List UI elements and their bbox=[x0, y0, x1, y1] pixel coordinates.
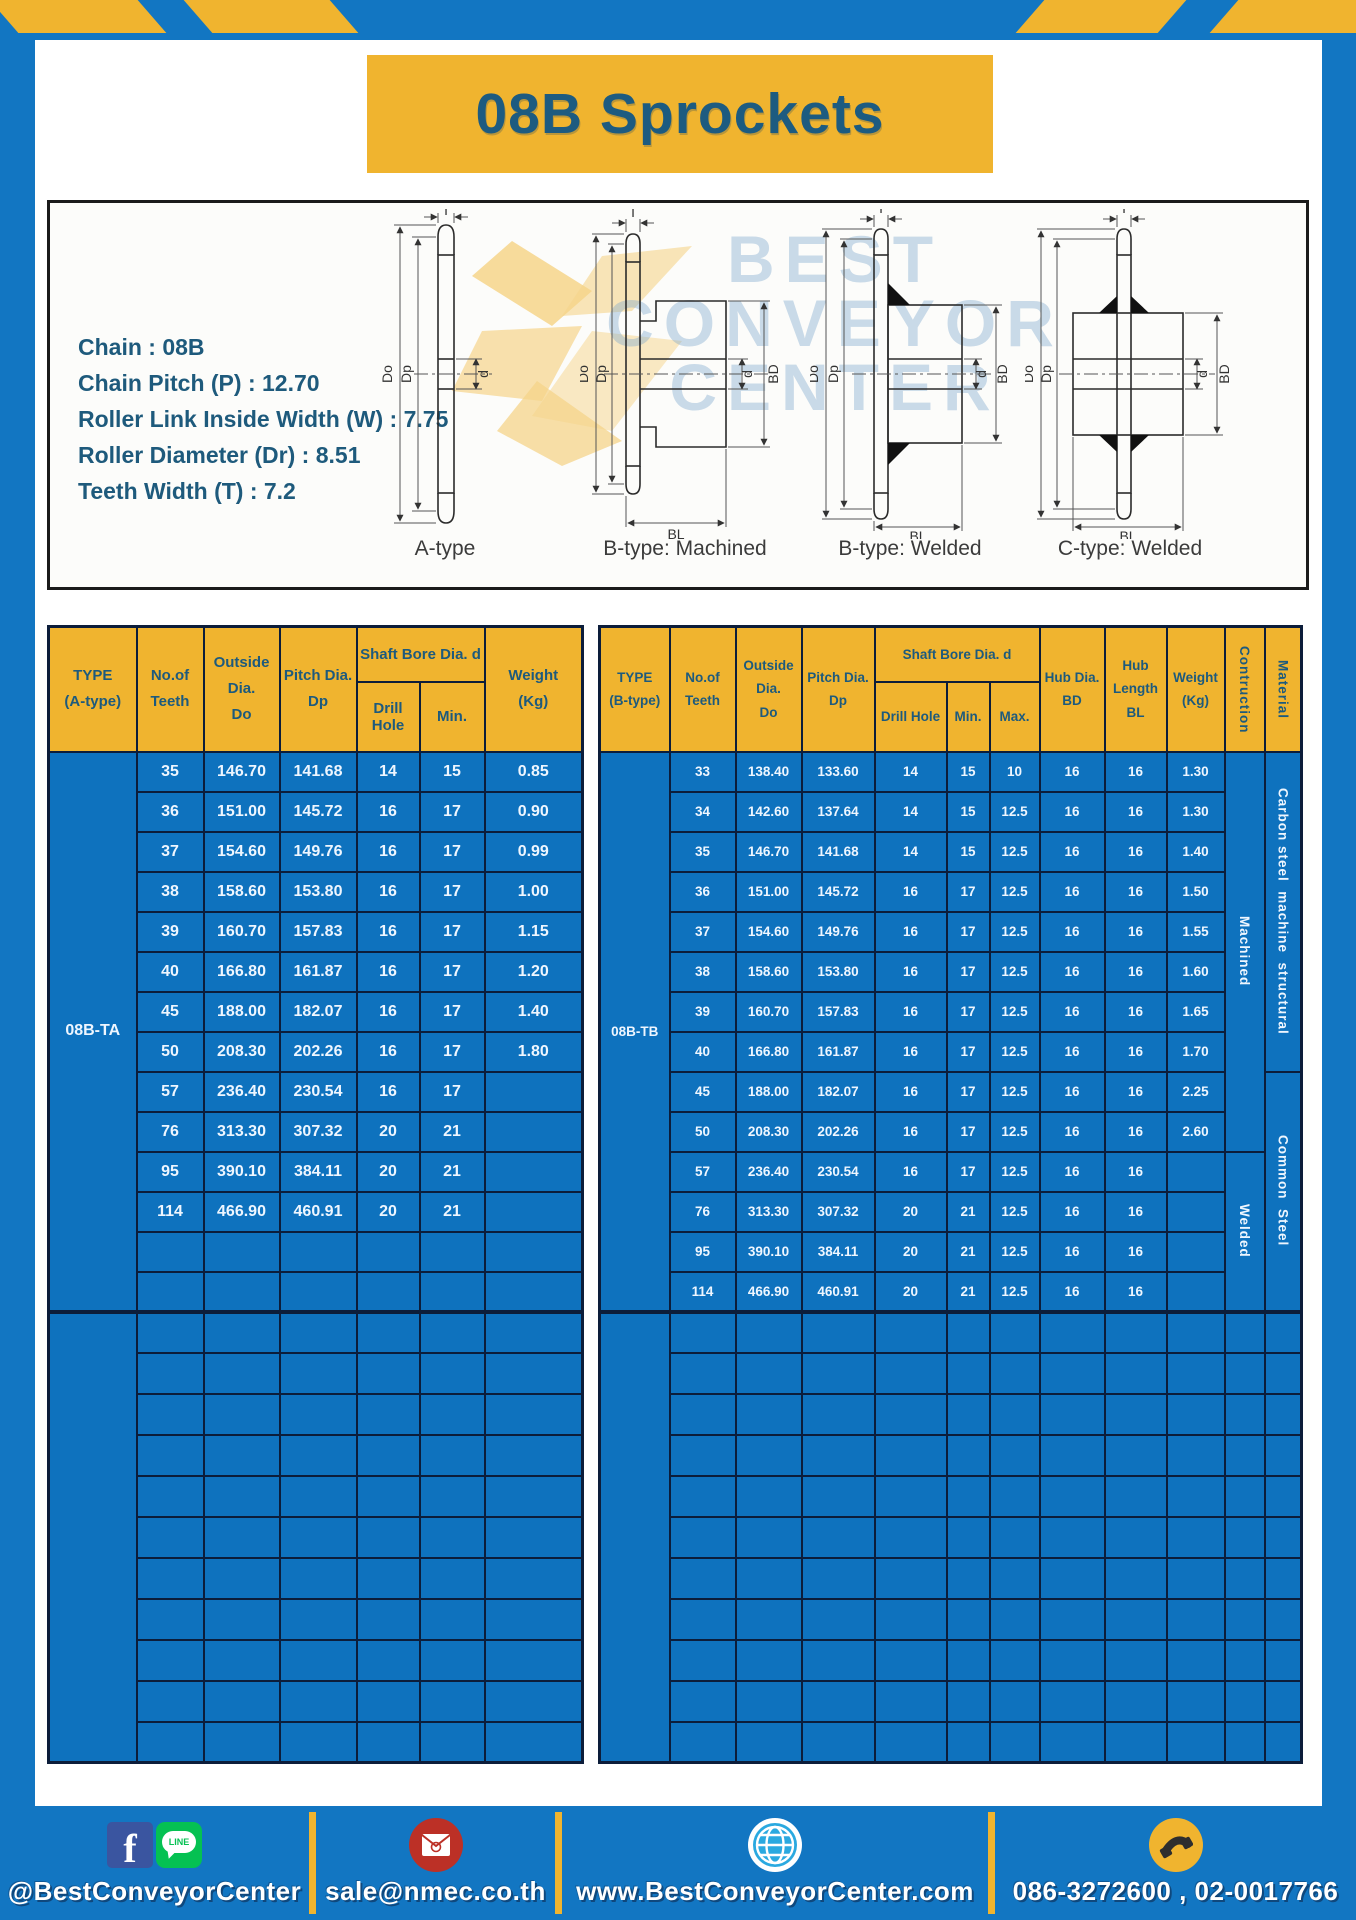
cell-outside: 146.70 bbox=[736, 832, 802, 872]
cell-pitch: 141.68 bbox=[280, 752, 357, 792]
empty-cell bbox=[137, 1312, 204, 1353]
cell-outside: 146.70 bbox=[204, 752, 280, 792]
catalog-page: 08B Sprockets BEST CONVEYOR CENTER Chain… bbox=[0, 0, 1356, 1920]
empty-cell bbox=[280, 1394, 357, 1435]
cell-outside: 466.90 bbox=[204, 1192, 280, 1232]
cell-min: 17 bbox=[420, 1032, 485, 1072]
empty-cell bbox=[420, 1558, 485, 1599]
cell-max: 12.5 bbox=[990, 792, 1040, 832]
cell-pitch: 460.91 bbox=[802, 1272, 875, 1312]
dim-label: Dp bbox=[398, 365, 414, 383]
cell-hub_dia: 16 bbox=[1040, 1152, 1105, 1192]
empty-cell bbox=[1167, 1312, 1225, 1353]
cell-pitch: 460.91 bbox=[280, 1192, 357, 1232]
dim-label: d bbox=[739, 370, 755, 378]
empty-cell bbox=[204, 1599, 280, 1640]
empty-cell bbox=[485, 1558, 583, 1599]
empty-cell bbox=[357, 1558, 420, 1599]
footer-phone-section: 086-3272600 , 02-0017766 bbox=[995, 1806, 1356, 1920]
empty-cell bbox=[204, 1722, 280, 1763]
empty-cell bbox=[875, 1640, 947, 1681]
empty-cell bbox=[137, 1599, 204, 1640]
cell-hub_dia: 16 bbox=[1040, 872, 1105, 912]
type-cell: 08B-TA bbox=[49, 752, 137, 1312]
cell-drill: 20 bbox=[357, 1192, 420, 1232]
empty-cell bbox=[736, 1435, 802, 1476]
empty-cell bbox=[485, 1435, 583, 1476]
cell-drill: 14 bbox=[875, 832, 947, 872]
empty-cell bbox=[947, 1640, 990, 1681]
cell-weight: 1.55 bbox=[1167, 912, 1225, 952]
empty-cell bbox=[1265, 1722, 1302, 1763]
empty-cell bbox=[204, 1558, 280, 1599]
empty-cell bbox=[990, 1722, 1040, 1763]
empty-cell bbox=[947, 1599, 990, 1640]
email-icon[interactable] bbox=[409, 1818, 463, 1872]
empty-cell bbox=[670, 1476, 736, 1517]
cell-min: 15 bbox=[420, 752, 485, 792]
cell-weight: 1.80 bbox=[485, 1032, 583, 1072]
cell-min: 21 bbox=[420, 1152, 485, 1192]
empty-cell bbox=[1225, 1353, 1265, 1394]
empty-cell bbox=[137, 1394, 204, 1435]
empty-cell bbox=[802, 1517, 875, 1558]
empty-cell bbox=[1040, 1312, 1105, 1353]
cell-pitch: 157.83 bbox=[280, 912, 357, 952]
cell-teeth: 34 bbox=[670, 792, 736, 832]
empty-cell bbox=[736, 1312, 802, 1353]
empty-cell bbox=[736, 1353, 802, 1394]
cell-teeth: 39 bbox=[670, 992, 736, 1032]
footer-divider bbox=[555, 1812, 562, 1914]
type-cell-empty bbox=[49, 1312, 137, 1763]
cell-hub_dia: 16 bbox=[1040, 1192, 1105, 1232]
footer-phone[interactable]: 086-3272600 , 02-0017766 bbox=[1013, 1876, 1339, 1907]
empty-cell bbox=[204, 1353, 280, 1394]
empty-cell bbox=[990, 1312, 1040, 1353]
header-teeth: No.ofTeeth bbox=[137, 627, 204, 752]
empty-cell bbox=[990, 1681, 1040, 1722]
empty-cell bbox=[1265, 1353, 1302, 1394]
cell-max: 12.5 bbox=[990, 872, 1040, 912]
cell-weight: 0.90 bbox=[485, 792, 583, 832]
cell-hub_dia: 16 bbox=[1040, 992, 1105, 1032]
cell-hub_len: 16 bbox=[1105, 1232, 1167, 1272]
drawing-label: C-type: Welded bbox=[1020, 537, 1240, 561]
empty-cell bbox=[670, 1312, 736, 1353]
cell-teeth: 95 bbox=[137, 1152, 204, 1192]
empty-cell bbox=[802, 1558, 875, 1599]
cell-pitch: 145.72 bbox=[280, 792, 357, 832]
cell-teeth: 37 bbox=[137, 832, 204, 872]
cell-pitch: 307.32 bbox=[280, 1112, 357, 1152]
type-cell-empty bbox=[600, 1312, 670, 1763]
cell-max: 12.5 bbox=[990, 1072, 1040, 1112]
empty-cell bbox=[485, 1640, 583, 1681]
cell-drill: 16 bbox=[357, 952, 420, 992]
cell-teeth: 38 bbox=[670, 952, 736, 992]
cell-pitch: 384.11 bbox=[802, 1232, 875, 1272]
empty-cell bbox=[947, 1558, 990, 1599]
empty-cell bbox=[1265, 1681, 1302, 1722]
cell-drill: 20 bbox=[875, 1232, 947, 1272]
cell-hub_len: 16 bbox=[1105, 1112, 1167, 1152]
empty-cell bbox=[875, 1353, 947, 1394]
cell-outside bbox=[204, 1232, 280, 1272]
empty-cell bbox=[420, 1353, 485, 1394]
cell-outside: 466.90 bbox=[736, 1272, 802, 1312]
empty-cell bbox=[1105, 1394, 1167, 1435]
empty-cell bbox=[485, 1312, 583, 1353]
cell-teeth: 50 bbox=[670, 1112, 736, 1152]
cell-teeth: 40 bbox=[137, 952, 204, 992]
cell-drill bbox=[357, 1272, 420, 1312]
empty-cell bbox=[204, 1517, 280, 1558]
cell-min: 21 bbox=[420, 1192, 485, 1232]
cell-min: 21 bbox=[947, 1232, 990, 1272]
cell-hub_len: 16 bbox=[1105, 1152, 1167, 1192]
empty-cell bbox=[137, 1722, 204, 1763]
cell-drill: 16 bbox=[875, 912, 947, 952]
empty-cell bbox=[736, 1517, 802, 1558]
empty-cell bbox=[485, 1681, 583, 1722]
empty-cell bbox=[736, 1476, 802, 1517]
cell-outside: 390.10 bbox=[736, 1232, 802, 1272]
empty-cell bbox=[485, 1476, 583, 1517]
empty-cell bbox=[137, 1353, 204, 1394]
cell-min: 17 bbox=[947, 912, 990, 952]
empty-cell bbox=[1225, 1558, 1265, 1599]
cell-weight bbox=[485, 1272, 583, 1312]
dim-label: Dp bbox=[593, 365, 609, 383]
empty-cell bbox=[875, 1517, 947, 1558]
empty-cell bbox=[875, 1394, 947, 1435]
hazard-stripe-icon bbox=[184, 0, 359, 33]
cell-pitch: 384.11 bbox=[280, 1152, 357, 1192]
empty-cell bbox=[1167, 1476, 1225, 1517]
empty-cell bbox=[947, 1312, 990, 1353]
sprocket-table-a: TYPE(A-type) No.ofTeeth OutsideDia.Do Pi… bbox=[47, 625, 584, 1764]
empty-cell bbox=[1167, 1681, 1225, 1722]
cell-teeth: 95 bbox=[670, 1232, 736, 1272]
empty-cell bbox=[1167, 1599, 1225, 1640]
empty-cell bbox=[1225, 1394, 1265, 1435]
cell-hub_len: 16 bbox=[1105, 1072, 1167, 1112]
footer-divider bbox=[988, 1812, 995, 1914]
empty-cell bbox=[420, 1517, 485, 1558]
cell-weight bbox=[1167, 1152, 1225, 1192]
empty-cell bbox=[1105, 1476, 1167, 1517]
empty-cell bbox=[280, 1681, 357, 1722]
cell-teeth: 35 bbox=[670, 832, 736, 872]
header-hub-length: HubLengthBL bbox=[1105, 627, 1167, 752]
cell-drill: 20 bbox=[875, 1272, 947, 1312]
cell-pitch: 153.80 bbox=[802, 952, 875, 992]
cell-min: 21 bbox=[947, 1272, 990, 1312]
drawing-b-type-welded: T Do Dp d BD BL bbox=[810, 209, 1010, 544]
cell-pitch: 182.07 bbox=[280, 992, 357, 1032]
drawing-b-type-machined: T Do Dp d BD BL bbox=[580, 209, 790, 544]
cell-max: 12.5 bbox=[990, 992, 1040, 1032]
cell-outside: 160.70 bbox=[204, 912, 280, 952]
cell-pitch: 141.68 bbox=[802, 832, 875, 872]
empty-cell bbox=[420, 1312, 485, 1353]
cell-max: 12.5 bbox=[990, 1152, 1040, 1192]
header-weight: Weight(Kg) bbox=[485, 627, 583, 752]
empty-cell bbox=[670, 1722, 736, 1763]
cell-min: 17 bbox=[947, 1072, 990, 1112]
cell-teeth: 35 bbox=[137, 752, 204, 792]
cell-weight: 1.40 bbox=[485, 992, 583, 1032]
cell-weight: 1.70 bbox=[1167, 1032, 1225, 1072]
cell-pitch: 153.80 bbox=[280, 872, 357, 912]
empty-cell bbox=[1265, 1599, 1302, 1640]
empty-cell bbox=[485, 1722, 583, 1763]
cell-max: 12.5 bbox=[990, 952, 1040, 992]
cell-drill: 14 bbox=[357, 752, 420, 792]
cell-hub_len: 16 bbox=[1105, 952, 1167, 992]
empty-cell bbox=[802, 1435, 875, 1476]
cell-drill: 16 bbox=[357, 992, 420, 1032]
cell-hub_len: 16 bbox=[1105, 1272, 1167, 1312]
cell-max: 12.5 bbox=[990, 1272, 1040, 1312]
empty-cell bbox=[485, 1599, 583, 1640]
empty-cell bbox=[485, 1517, 583, 1558]
empty-cell bbox=[1225, 1599, 1265, 1640]
header-max: Max. bbox=[990, 682, 1040, 752]
empty-cell bbox=[1040, 1681, 1105, 1722]
header-outside-dia: OutsideDia.Do bbox=[736, 627, 802, 752]
footer-email[interactable]: sale@nmec.co.th bbox=[325, 1876, 546, 1907]
cell-hub_dia: 16 bbox=[1040, 792, 1105, 832]
empty-cell bbox=[802, 1394, 875, 1435]
header-pitch-dia: Pitch Dia.Dp bbox=[280, 627, 357, 752]
hazard-stripe-icon bbox=[1210, 0, 1356, 33]
empty-cell bbox=[1040, 1435, 1105, 1476]
empty-cell bbox=[947, 1517, 990, 1558]
cell-drill: 16 bbox=[357, 912, 420, 952]
cell-teeth: 33 bbox=[670, 752, 736, 792]
drawing-c-type-welded: T Do Dp d BD BL bbox=[1025, 209, 1235, 544]
empty-cell bbox=[990, 1353, 1040, 1394]
hazard-stripe-icon bbox=[1016, 0, 1187, 33]
empty-cell bbox=[990, 1394, 1040, 1435]
cell-max: 12.5 bbox=[990, 1032, 1040, 1072]
facebook-icon[interactable]: f bbox=[107, 1822, 153, 1868]
empty-cell bbox=[670, 1394, 736, 1435]
dim-label: Dp bbox=[825, 365, 841, 383]
empty-cell bbox=[875, 1681, 947, 1722]
dim-label: T bbox=[877, 209, 886, 216]
empty-cell bbox=[990, 1435, 1040, 1476]
empty-cell bbox=[1105, 1558, 1167, 1599]
footer-email-section: sale@nmec.co.th bbox=[316, 1806, 555, 1920]
cell-outside: 390.10 bbox=[204, 1152, 280, 1192]
cell-drill: 16 bbox=[875, 1152, 947, 1192]
material-cell: Common Steel bbox=[1265, 1072, 1302, 1312]
empty-cell bbox=[947, 1394, 990, 1435]
header-min: Min. bbox=[420, 682, 485, 752]
cell-drill bbox=[357, 1232, 420, 1272]
cell-min: 17 bbox=[947, 1032, 990, 1072]
cell-min bbox=[420, 1232, 485, 1272]
empty-cell bbox=[802, 1312, 875, 1353]
empty-cell bbox=[670, 1640, 736, 1681]
cell-teeth: 36 bbox=[137, 792, 204, 832]
globe-icon[interactable] bbox=[748, 1818, 802, 1872]
empty-cell bbox=[357, 1435, 420, 1476]
empty-cell bbox=[137, 1640, 204, 1681]
cell-weight: 1.30 bbox=[1167, 792, 1225, 832]
empty-cell bbox=[990, 1599, 1040, 1640]
empty-cell bbox=[1225, 1476, 1265, 1517]
empty-cell bbox=[1167, 1517, 1225, 1558]
cell-weight bbox=[1167, 1272, 1225, 1312]
empty-cell bbox=[420, 1640, 485, 1681]
empty-cell bbox=[1105, 1517, 1167, 1558]
cell-outside bbox=[204, 1272, 280, 1312]
cell-teeth: 38 bbox=[137, 872, 204, 912]
dim-label: T bbox=[1120, 209, 1129, 216]
dim-label: T bbox=[629, 209, 638, 220]
cell-outside: 151.00 bbox=[736, 872, 802, 912]
dim-label: d bbox=[973, 370, 989, 378]
cell-outside: 154.60 bbox=[204, 832, 280, 872]
dim-label: d bbox=[1194, 370, 1210, 378]
cell-hub_dia: 16 bbox=[1040, 912, 1105, 952]
empty-cell bbox=[670, 1599, 736, 1640]
cell-min: 17 bbox=[420, 792, 485, 832]
cell-pitch: 202.26 bbox=[280, 1032, 357, 1072]
empty-cell bbox=[280, 1353, 357, 1394]
dim-label: BD bbox=[994, 364, 1010, 383]
empty-cell bbox=[1040, 1394, 1105, 1435]
dim-label: Do bbox=[810, 365, 821, 383]
cell-pitch: 137.64 bbox=[802, 792, 875, 832]
cell-teeth: 57 bbox=[137, 1072, 204, 1112]
cell-hub_dia: 16 bbox=[1040, 1112, 1105, 1152]
footer-divider bbox=[309, 1812, 316, 1914]
cell-pitch: 230.54 bbox=[280, 1072, 357, 1112]
cell-weight: 1.30 bbox=[1167, 752, 1225, 792]
footer-social-handle[interactable]: @BestConveyorCenter bbox=[8, 1876, 301, 1907]
cell-min: 17 bbox=[947, 952, 990, 992]
empty-cell bbox=[485, 1394, 583, 1435]
header-teeth: No.ofTeeth bbox=[670, 627, 736, 752]
dim-label: BD bbox=[765, 364, 781, 383]
empty-cell bbox=[802, 1353, 875, 1394]
empty-cell bbox=[280, 1312, 357, 1353]
cell-min: 15 bbox=[947, 832, 990, 872]
construction-cell: Machined bbox=[1225, 752, 1265, 1152]
cell-pitch: 145.72 bbox=[802, 872, 875, 912]
empty-cell bbox=[1225, 1722, 1265, 1763]
empty-cell bbox=[204, 1640, 280, 1681]
cell-pitch: 307.32 bbox=[802, 1192, 875, 1232]
cell-min: 17 bbox=[947, 872, 990, 912]
cell-drill: 16 bbox=[357, 792, 420, 832]
cell-pitch: 149.76 bbox=[280, 832, 357, 872]
cell-teeth: 114 bbox=[670, 1272, 736, 1312]
cell-drill: 14 bbox=[875, 752, 947, 792]
empty-cell bbox=[947, 1476, 990, 1517]
empty-cell bbox=[357, 1517, 420, 1558]
cell-outside: 188.00 bbox=[736, 1072, 802, 1112]
cell-outside: 142.60 bbox=[736, 792, 802, 832]
cell-min: 21 bbox=[420, 1112, 485, 1152]
empty-cell bbox=[1167, 1394, 1225, 1435]
empty-cell bbox=[357, 1476, 420, 1517]
cell-hub_dia: 16 bbox=[1040, 1272, 1105, 1312]
empty-cell bbox=[1040, 1722, 1105, 1763]
cell-weight: 1.40 bbox=[1167, 832, 1225, 872]
empty-cell bbox=[1167, 1353, 1225, 1394]
header-construction: Contruction bbox=[1225, 627, 1265, 752]
drawing-label: B-type: Welded bbox=[800, 537, 1020, 561]
drawing-a-type: T Do Dp d bbox=[380, 209, 510, 544]
cell-weight: 0.85 bbox=[485, 752, 583, 792]
cell-weight bbox=[485, 1112, 583, 1152]
cell-weight: 1.00 bbox=[485, 872, 583, 912]
empty-cell bbox=[990, 1517, 1040, 1558]
cell-drill: 16 bbox=[875, 1072, 947, 1112]
empty-cell bbox=[1225, 1517, 1265, 1558]
empty-cell bbox=[1265, 1640, 1302, 1681]
cell-hub_dia: 16 bbox=[1040, 952, 1105, 992]
dim-label: d bbox=[475, 370, 491, 378]
empty-cell bbox=[875, 1599, 947, 1640]
cell-outside: 166.80 bbox=[204, 952, 280, 992]
cell-teeth bbox=[137, 1272, 204, 1312]
empty-cell bbox=[1167, 1558, 1225, 1599]
empty-cell bbox=[137, 1517, 204, 1558]
cell-weight: 1.20 bbox=[485, 952, 583, 992]
cell-drill: 16 bbox=[875, 872, 947, 912]
cell-weight bbox=[485, 1072, 583, 1112]
cell-pitch bbox=[280, 1232, 357, 1272]
empty-cell bbox=[357, 1312, 420, 1353]
cell-outside: 208.30 bbox=[204, 1032, 280, 1072]
cell-weight: 1.15 bbox=[485, 912, 583, 952]
cell-outside: 208.30 bbox=[736, 1112, 802, 1152]
empty-cell bbox=[204, 1394, 280, 1435]
empty-cell bbox=[1265, 1435, 1302, 1476]
dim-label: Dp bbox=[1038, 365, 1054, 383]
header-material: Material bbox=[1265, 627, 1302, 752]
empty-cell bbox=[1225, 1312, 1265, 1353]
empty-cell bbox=[1265, 1476, 1302, 1517]
cell-outside: 236.40 bbox=[736, 1152, 802, 1192]
sprocket-table-b: TYPE(B-type) No.ofTeeth OutsideDia.Do Pi… bbox=[598, 625, 1303, 1764]
cell-weight: 2.25 bbox=[1167, 1072, 1225, 1112]
empty-cell bbox=[875, 1435, 947, 1476]
empty-cell bbox=[875, 1722, 947, 1763]
cell-outside: 138.40 bbox=[736, 752, 802, 792]
footer-website[interactable]: www.BestConveyorCenter.com bbox=[576, 1876, 974, 1907]
cell-min: 17 bbox=[420, 872, 485, 912]
phone-icon[interactable] bbox=[1149, 1818, 1203, 1872]
cell-drill: 20 bbox=[357, 1112, 420, 1152]
empty-cell bbox=[1105, 1681, 1167, 1722]
cell-drill: 16 bbox=[357, 832, 420, 872]
cell-min: 17 bbox=[947, 992, 990, 1032]
line-icon[interactable]: LINE bbox=[156, 1822, 202, 1868]
dim-label: Do bbox=[580, 365, 591, 383]
empty-cell bbox=[357, 1394, 420, 1435]
cell-drill: 16 bbox=[357, 1032, 420, 1072]
empty-cell bbox=[357, 1599, 420, 1640]
empty-cell bbox=[1225, 1435, 1265, 1476]
